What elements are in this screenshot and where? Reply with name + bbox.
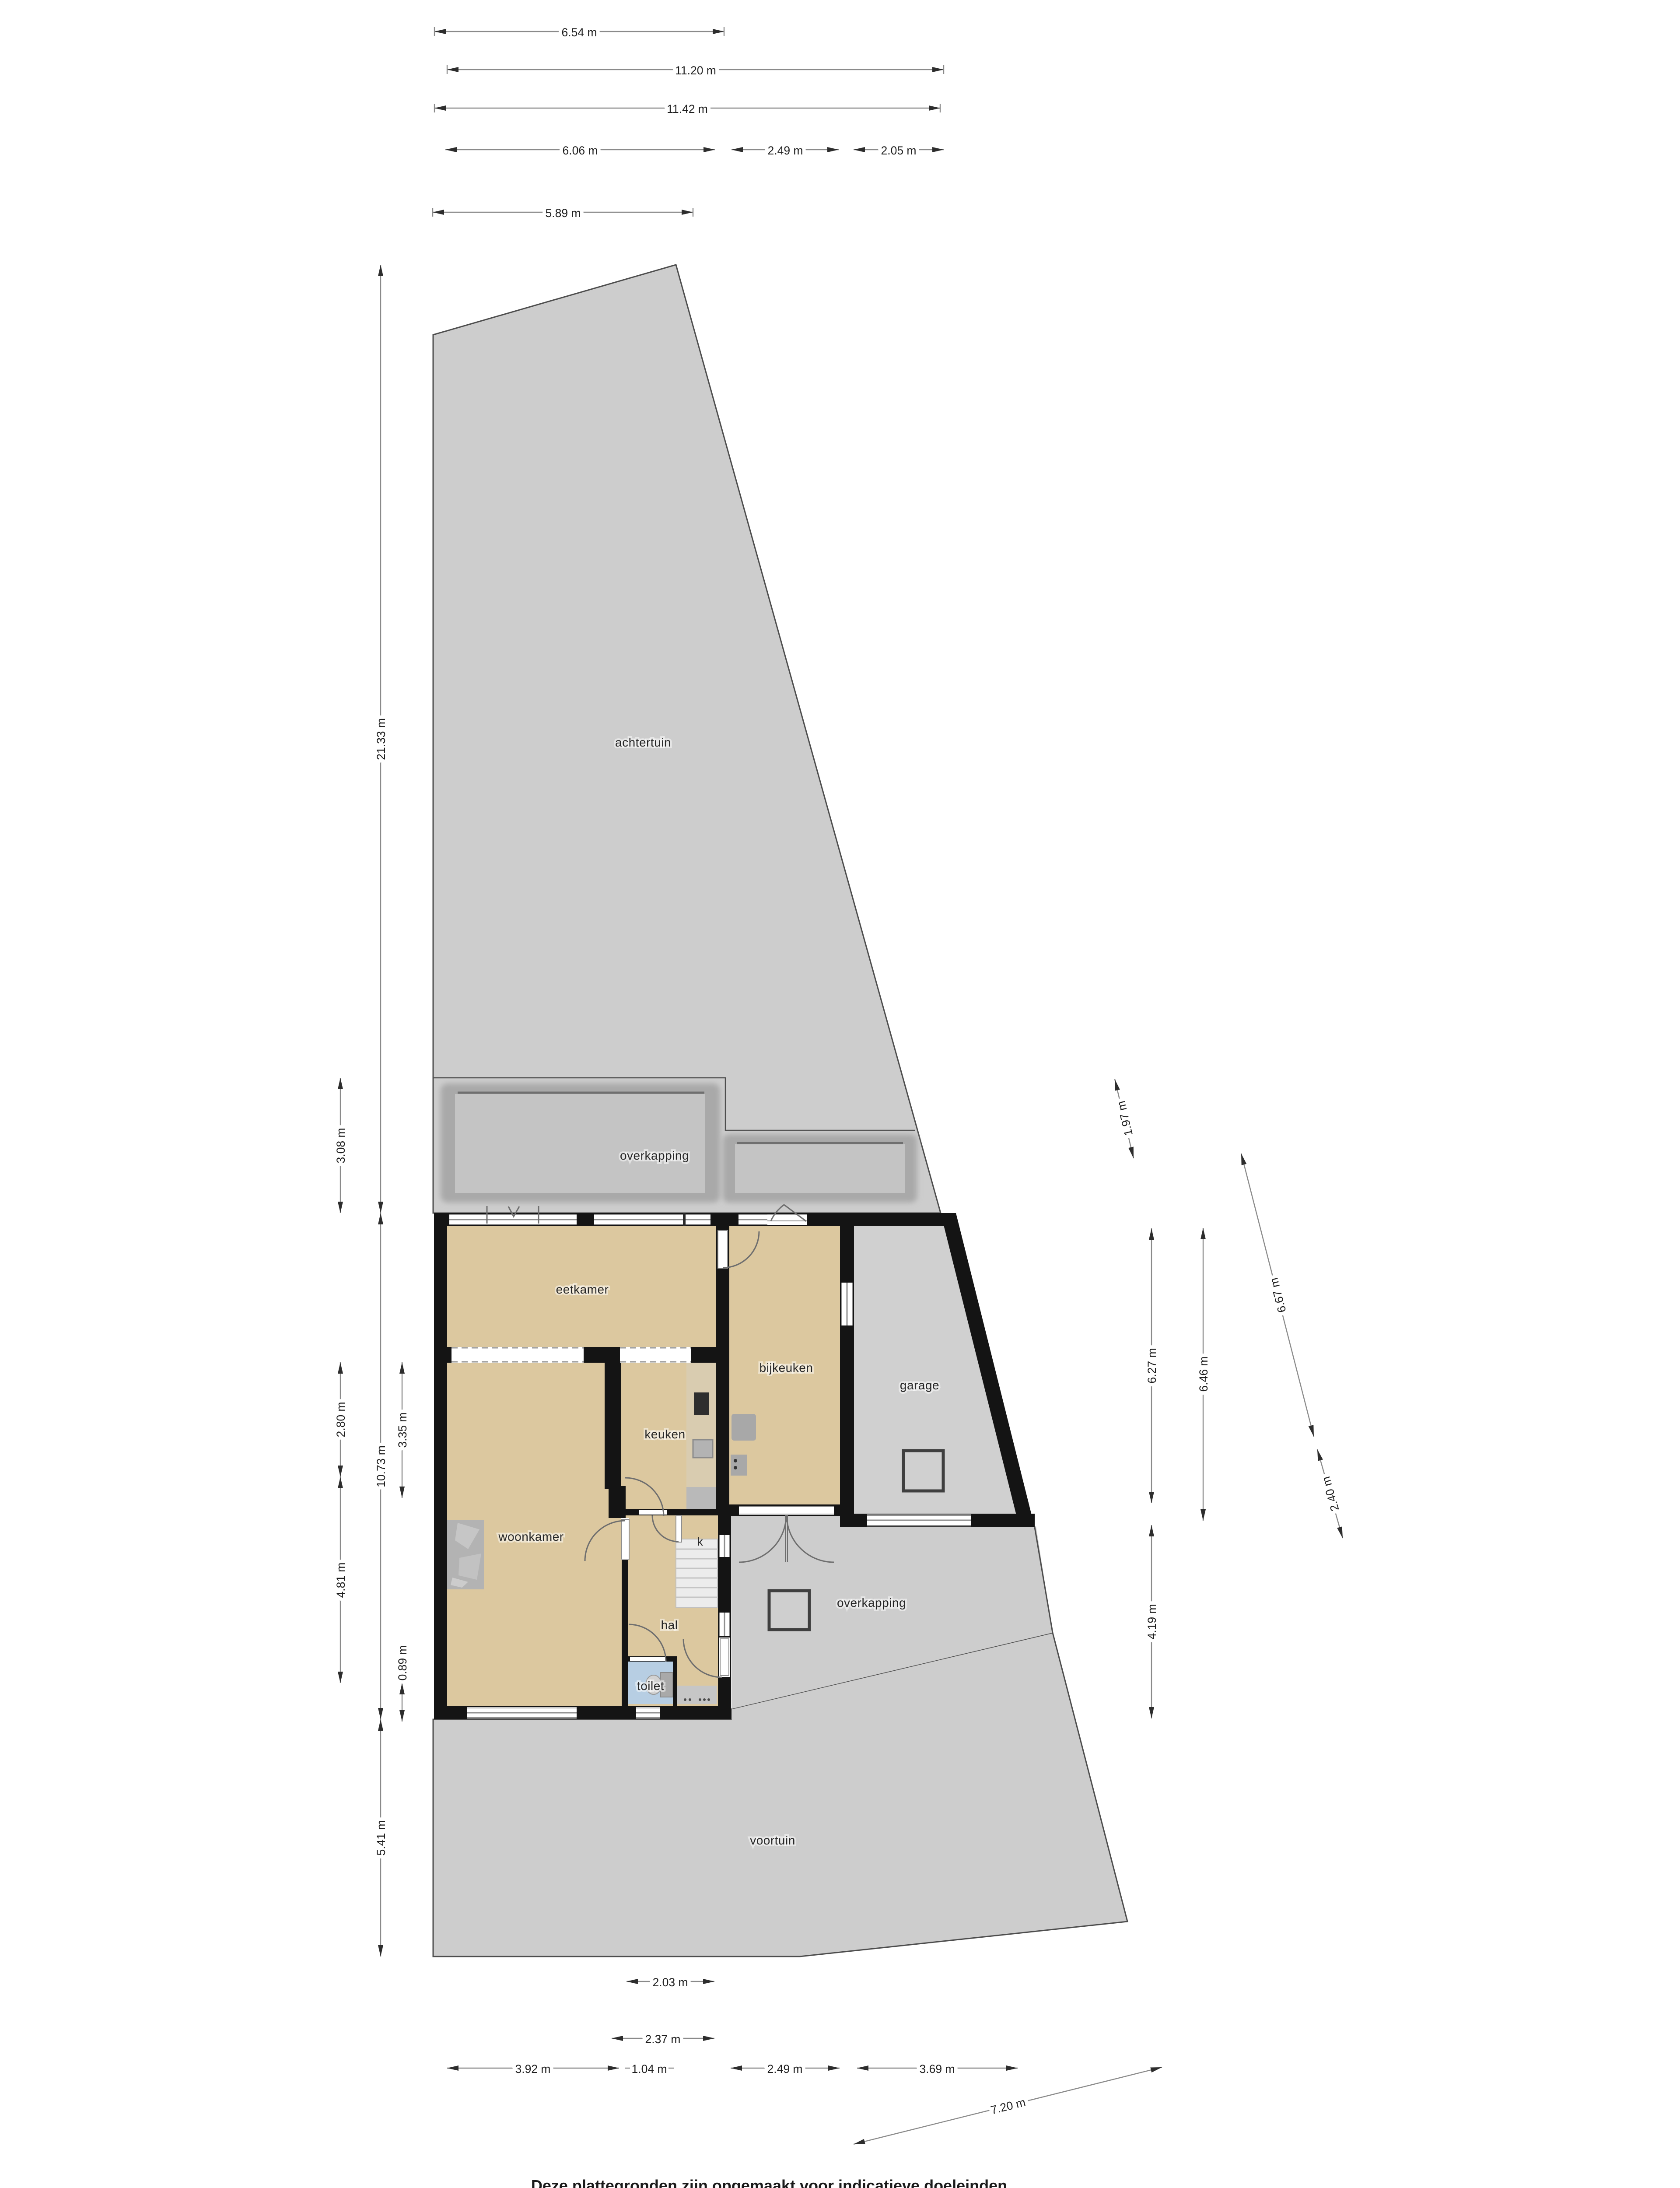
svg-text:eetkamer: eetkamer xyxy=(556,1283,609,1296)
svg-text:7.20 m: 7.20 m xyxy=(989,2096,1027,2117)
svg-text:2.03 m: 2.03 m xyxy=(652,1976,688,1989)
svg-text:achtertuin: achtertuin xyxy=(615,736,671,749)
svg-text:garage: garage xyxy=(900,1378,939,1392)
svg-text:11.42 m: 11.42 m xyxy=(667,102,708,116)
svg-text:k: k xyxy=(697,1535,703,1548)
svg-text:overkapping: overkapping xyxy=(837,1596,906,1609)
svg-text:5.41 m: 5.41 m xyxy=(374,1820,388,1855)
svg-text:keuken: keuken xyxy=(644,1427,685,1441)
svg-text:woonkamer: woonkamer xyxy=(498,1530,563,1543)
svg-text:11.20 m: 11.20 m xyxy=(675,64,716,77)
svg-text:1.04 m: 1.04 m xyxy=(631,2062,667,2076)
svg-text:2.37 m: 2.37 m xyxy=(645,2033,680,2046)
svg-text:voortuin: voortuin xyxy=(750,1834,795,1847)
svg-text:10.73 m: 10.73 m xyxy=(374,1445,388,1487)
svg-text:3.69 m: 3.69 m xyxy=(919,2062,955,2076)
svg-text:2.49 m: 2.49 m xyxy=(767,144,803,157)
svg-text:2.80 m: 2.80 m xyxy=(334,1402,347,1437)
svg-text:6.54 m: 6.54 m xyxy=(561,26,597,39)
svg-text:6.27 m: 6.27 m xyxy=(1145,1348,1158,1383)
svg-text:2.49 m: 2.49 m xyxy=(767,2062,802,2076)
svg-text:bijkeuken: bijkeuken xyxy=(759,1361,813,1375)
svg-text:2.05 m: 2.05 m xyxy=(881,144,916,157)
svg-text:4.81 m: 4.81 m xyxy=(334,1562,347,1598)
svg-text:6.06 m: 6.06 m xyxy=(562,144,598,157)
svg-text:3.35 m: 3.35 m xyxy=(396,1412,409,1448)
svg-text:21.33 m: 21.33 m xyxy=(374,718,388,760)
svg-text:toilet: toilet xyxy=(637,1679,664,1693)
svg-text:Deze plattegronden zijn opgema: Deze plattegronden zijn opgemaakt voor i… xyxy=(531,2177,1011,2188)
svg-text:overkapping: overkapping xyxy=(620,1149,689,1162)
svg-text:hal: hal xyxy=(661,1618,678,1632)
svg-text:1.97 m: 1.97 m xyxy=(1114,1100,1135,1137)
svg-text:2.40 m: 2.40 m xyxy=(1319,1475,1341,1513)
svg-text:6.46 m: 6.46 m xyxy=(1197,1356,1210,1392)
svg-text:3.92 m: 3.92 m xyxy=(515,2062,550,2076)
svg-text:5.89 m: 5.89 m xyxy=(545,207,581,220)
svg-text:0.89 m: 0.89 m xyxy=(396,1645,409,1680)
svg-text:4.19 m: 4.19 m xyxy=(1145,1604,1158,1639)
svg-text:3.08 m: 3.08 m xyxy=(334,1128,347,1163)
svg-text:6.67 m: 6.67 m xyxy=(1267,1276,1288,1314)
